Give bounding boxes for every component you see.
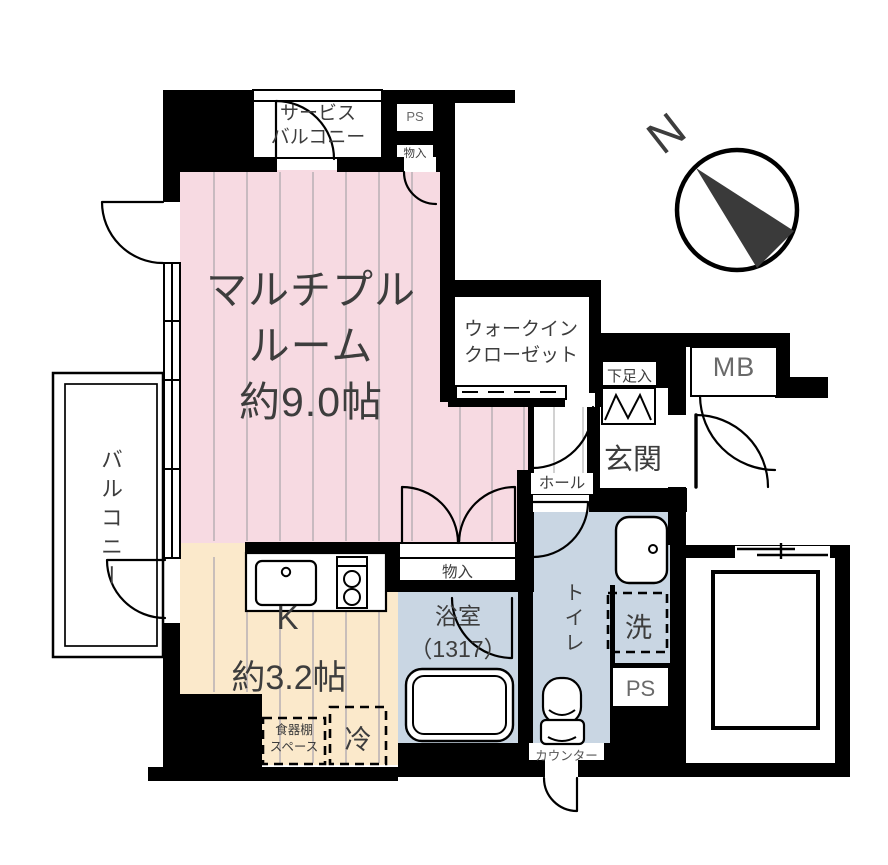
label-kitchen-size: 約3.2帖 bbox=[180, 650, 398, 699]
label-kitchen-k: K bbox=[180, 599, 395, 637]
wash-basin bbox=[616, 517, 667, 583]
toilet-door-gap bbox=[533, 495, 589, 512]
label-counter: カウンター bbox=[529, 745, 604, 764]
bottom-exterior-door bbox=[544, 778, 577, 811]
bathtub bbox=[406, 669, 513, 741]
label-balcony: バルコニー bbox=[94, 415, 126, 625]
storage-mid-shelf bbox=[399, 543, 516, 558]
floorplan: サービス バルコニー PS 物入 マルチプル ルーム 約9.0帖 ウォークイン … bbox=[0, 0, 888, 865]
label-multiple-room: マルチプル ルーム 約9.0帖 bbox=[178, 262, 444, 430]
label-genkan: 玄関 bbox=[598, 436, 668, 478]
label-wic: ウォークイン クローゼット bbox=[452, 317, 590, 369]
floorplan-drawing bbox=[0, 0, 888, 865]
label-toilet: トイレ bbox=[558, 562, 587, 677]
hall-door-gap bbox=[565, 393, 595, 407]
side-room-floor bbox=[687, 558, 835, 763]
label-storage-mid: 物入 bbox=[399, 560, 516, 582]
label-fridge: 冷 bbox=[330, 718, 386, 757]
compass bbox=[677, 150, 797, 270]
service-balcony-rail bbox=[253, 90, 382, 101]
label-storage-top: 物入 bbox=[396, 145, 434, 161]
label-ps-bottom: PS bbox=[613, 676, 668, 702]
faucet bbox=[282, 568, 290, 576]
label-bathroom: 浴室 （1317） bbox=[398, 600, 518, 666]
toilet-fixture bbox=[541, 678, 584, 744]
entry-door-gap bbox=[668, 415, 686, 487]
label-mb: MB bbox=[691, 352, 777, 383]
porch-floor bbox=[686, 398, 828, 545]
label-cupboard: 食器棚 スペース bbox=[262, 722, 326, 755]
label-washer: 洗 bbox=[610, 606, 667, 645]
label-ps-top: PS bbox=[396, 109, 434, 124]
label-service-balcony: サービス バルコニー bbox=[253, 102, 383, 150]
room-left-door bbox=[102, 202, 163, 263]
label-shoe-box: 下足入 bbox=[602, 365, 657, 386]
label-hall: ホール bbox=[531, 473, 593, 494]
